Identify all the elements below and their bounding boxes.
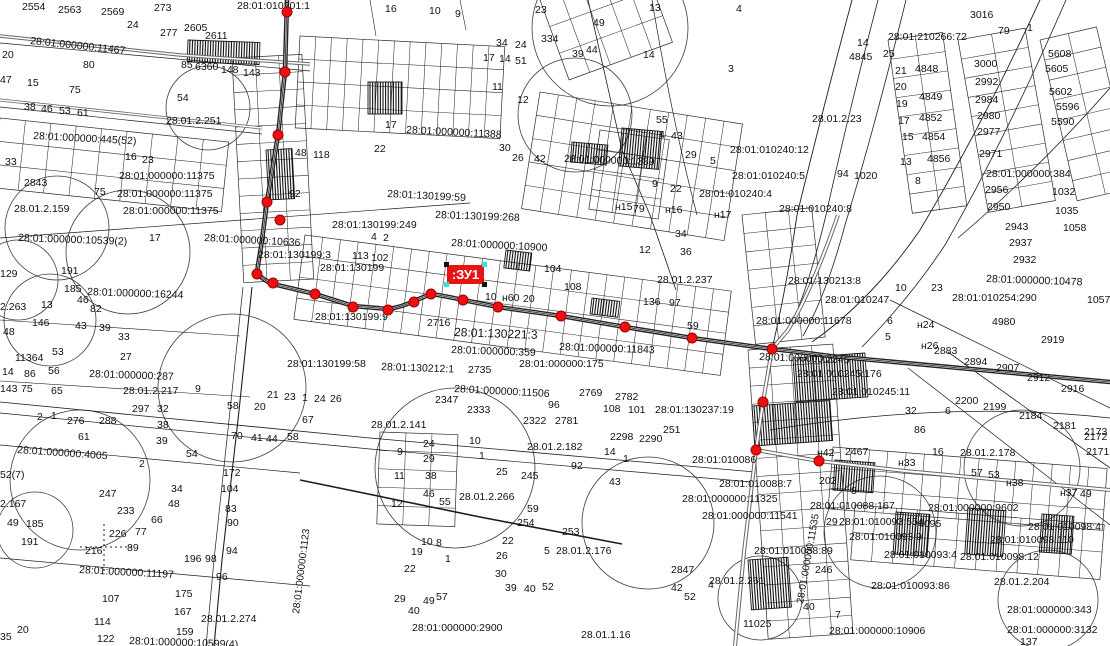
map-label: 226: [109, 528, 127, 540]
map-label: 28:01:010098:110: [990, 534, 1074, 546]
map-label: 28:01:000000:11375: [119, 170, 215, 182]
map-label: 104: [544, 263, 562, 275]
route-vertex-dot[interactable]: [383, 305, 393, 315]
map-label: 26: [496, 550, 508, 562]
map-label: 30: [499, 142, 511, 154]
map-label: 8: [851, 485, 857, 497]
map-label: 2: [383, 232, 389, 244]
map-label: 28.01.2.261: [709, 575, 765, 587]
map-label: 2554: [22, 1, 46, 13]
map-label: 2199: [983, 401, 1007, 413]
map-label: 143: [243, 67, 261, 79]
map-label: 24: [515, 39, 527, 51]
map-label: 32: [905, 405, 917, 417]
map-label: 28:01:000000:10900: [451, 237, 548, 254]
map-label: 247: [99, 488, 117, 500]
map-label: 14: [604, 446, 616, 458]
map-label: 24: [423, 438, 435, 450]
map-label: 49: [423, 595, 435, 607]
map-label: 122: [97, 633, 115, 645]
map-label: 28:01:130221:3: [454, 325, 538, 342]
route-vertex-dot[interactable]: [556, 311, 566, 321]
map-label: 23: [931, 282, 943, 294]
map-label: 104: [221, 483, 239, 495]
map-label: 34: [171, 483, 183, 495]
map-label: 28:01:130199:268: [435, 209, 520, 224]
map-label: 2984: [975, 94, 999, 106]
map-label: 40: [524, 583, 536, 595]
route-vertex-dot[interactable]: [814, 456, 824, 466]
map-label: 59: [687, 320, 699, 332]
map-label: 28.01.2.176: [556, 545, 612, 557]
map-label: 2912: [1027, 372, 1051, 384]
map-label: 89: [127, 542, 139, 554]
map-label: 1020: [854, 170, 878, 182]
map-label: 56: [48, 365, 60, 377]
map-label: 1058: [1063, 222, 1087, 234]
map-label: 23: [284, 391, 296, 403]
map-label: 10: [469, 435, 481, 447]
route-vertex-dot[interactable]: [348, 302, 358, 312]
map-label: 4: [736, 3, 742, 15]
map-label: 5608: [1048, 48, 1072, 60]
route-vertex-dot[interactable]: [262, 197, 272, 207]
map-label: 4: [371, 231, 377, 243]
map-label: 28:01:000000:11843: [559, 341, 655, 356]
map-label: 2971: [979, 148, 1003, 160]
map-label: 6: [887, 315, 893, 327]
map-label: 148: [221, 64, 239, 76]
map-label: 136: [643, 296, 661, 308]
map-label: 9: [195, 383, 201, 395]
map-label: 75: [69, 84, 81, 96]
map-label: 10: [895, 282, 907, 294]
map-label: 38: [24, 101, 36, 113]
map-label: 51: [515, 55, 527, 67]
map-label: 185: [26, 518, 44, 530]
map-label: 34: [496, 37, 508, 49]
map-label: 167: [174, 606, 192, 618]
map-label: 35: [0, 631, 12, 643]
map-label: 28:01:000000:1389: [564, 153, 655, 168]
route-vertex-dot[interactable]: [687, 333, 697, 343]
selection-handle-bl[interactable]: [444, 282, 449, 287]
building-hatch-block: [590, 298, 620, 317]
map-label: 21: [895, 65, 907, 77]
map-label: 29: [826, 516, 838, 528]
map-label: 4849: [919, 91, 943, 103]
map-label: 27: [120, 351, 132, 363]
map-label: 28:01:000000:11467: [30, 35, 126, 57]
map-label: 28.01.2.182: [527, 441, 583, 453]
map-label: 28:01:000000:11535: [795, 513, 822, 605]
map-label: 28:01:000000:11678: [756, 315, 852, 327]
map-label: 5596: [1056, 101, 1080, 113]
map-label: 191: [61, 265, 79, 277]
route-vertex-dot[interactable]: [758, 397, 768, 407]
map-label: 28:01:130199:59: [387, 188, 467, 204]
map-label: 34: [675, 228, 687, 240]
map-label: 28:01:000000:343: [1007, 604, 1092, 616]
map-label: 30: [495, 568, 507, 580]
map-label: 28:01:010093:9: [849, 531, 922, 543]
map-label: 20: [17, 624, 29, 636]
map-label: 28:01:130199:249: [332, 219, 417, 231]
map-label: 2883: [934, 345, 958, 357]
map-label: 28:01:130199:58: [287, 358, 366, 370]
map-label: 28:01:010098:4: [1028, 521, 1101, 533]
route-vertex-dot[interactable]: [252, 269, 262, 279]
map-label: 67: [302, 414, 314, 426]
map-label: 28:01:010245:176: [797, 368, 882, 380]
map-label: 14: [857, 37, 869, 49]
route-vertex-dot[interactable]: [268, 278, 278, 288]
map-label: 2298: [610, 431, 634, 443]
map-label: 2.263: [0, 301, 26, 313]
map-label: 28:01:000000:11388: [406, 124, 502, 141]
map-label: 2950: [987, 201, 1011, 213]
map-label: 46: [41, 103, 53, 115]
map-label: 2322: [523, 415, 547, 427]
road-inner: [0, 100, 262, 128]
map-label: 8: [915, 175, 921, 187]
map-label: 77: [135, 526, 147, 538]
map-label: 42: [671, 582, 683, 594]
map-label: 52: [542, 581, 554, 593]
map-label: 2.167: [0, 498, 26, 510]
route-vertex-dot[interactable]: [273, 130, 283, 140]
parcel-block: [295, 36, 505, 139]
map-label: 12: [639, 244, 651, 256]
map-label: 28.01.1.16: [581, 629, 631, 641]
map-label: 86: [24, 368, 36, 380]
map-label: 79: [998, 25, 1010, 37]
map-label: 28.01.2.217: [123, 385, 179, 397]
zu1-parcel-label[interactable]: :ЗУ1: [447, 265, 484, 284]
map-label: 16: [932, 446, 944, 458]
map-label: 38: [425, 470, 437, 482]
map-label: 53: [52, 346, 64, 358]
map-label: 11: [492, 81, 503, 93]
map-label: 52: [684, 591, 696, 603]
map-label: 28:01:010240:8: [779, 203, 852, 215]
map-label: 277: [160, 27, 178, 39]
map-label: 57: [436, 591, 448, 603]
map-label: 101: [628, 404, 646, 416]
map-label: 9: [397, 446, 403, 458]
map-label: 143: [0, 383, 18, 395]
map-label: 9: [652, 178, 658, 190]
map-label: 7: [835, 609, 841, 621]
zone-boundary-circle: [166, 66, 250, 150]
map-label: 28:01:000000:11197: [79, 564, 174, 581]
route-vertex-dot[interactable]: [493, 302, 503, 312]
route-vertex-dot[interactable]: [620, 322, 630, 332]
map-label: 46: [423, 488, 435, 500]
map-label: 10: [421, 536, 433, 548]
map-label: 2605: [184, 22, 208, 34]
map-label: 28.01.2.178: [960, 447, 1016, 459]
map-label: 28:01:210266:72: [888, 31, 967, 43]
map-label: 108: [603, 403, 621, 415]
map-label: 3: [728, 63, 734, 75]
map-label: 16: [385, 3, 397, 15]
map-label: 28:01:000000:11375: [123, 205, 219, 217]
map-label: 15: [27, 77, 39, 89]
map-label: 98: [205, 553, 217, 565]
map-label: 28:01:000000:10539(2): [18, 232, 128, 248]
map-label: 10: [429, 5, 441, 17]
map-label: 14: [2, 366, 14, 378]
map-label: 19: [896, 98, 908, 110]
map-label: 44: [266, 433, 278, 445]
map-label: 40: [408, 605, 420, 617]
map-label: н38: [1006, 477, 1024, 489]
map-label: 22: [502, 535, 514, 547]
map-label: 28.01.2.23: [812, 113, 862, 125]
map-label: 28:01:000000:175: [519, 358, 604, 370]
map-label: 108: [564, 281, 582, 293]
map-label: 3000: [974, 58, 998, 70]
map-label: 28:01:000000:10599(4): [129, 635, 239, 646]
map-label: 1032: [1052, 186, 1076, 198]
map-label: 39: [572, 48, 584, 60]
map-label: н60: [502, 292, 520, 304]
map-label: 172: [223, 467, 241, 479]
map-label: 28:01:000000:9602: [928, 502, 1019, 514]
map-label: н16: [665, 204, 683, 216]
map-label: 52(7): [0, 469, 25, 481]
map-label: 39: [505, 582, 517, 594]
map-label: 3016: [970, 9, 994, 21]
map-label: 28:01:000000:11541: [702, 510, 798, 522]
map-label: 1: [445, 553, 451, 565]
map-label: н37: [1060, 487, 1078, 499]
map-label: 2843: [24, 177, 48, 189]
map-label: 28:01:130199: [320, 262, 384, 274]
map-label: 2781: [555, 415, 579, 427]
map-label: 28:01:000000:10636: [204, 232, 301, 249]
map-label: 28:01:010254:290: [952, 292, 1037, 304]
map-label: 82: [90, 303, 102, 315]
map-label: 196: [184, 553, 202, 565]
map-label: 2782: [615, 391, 639, 403]
map-label: 75: [94, 186, 106, 198]
map-label: 29: [394, 593, 406, 605]
map-label: 28:01:000000:11506: [454, 383, 550, 400]
route-vertex-dot[interactable]: [767, 344, 777, 354]
map-label: 28.01.2.141: [371, 419, 427, 431]
map-label: 2907: [996, 362, 1020, 374]
map-label: 118: [313, 149, 330, 161]
map-label: 14: [643, 49, 655, 61]
map-label: 28:01:130237:19: [655, 404, 734, 416]
cadastral-map-canvas[interactable]: 25542563256927328:01:010201:124277260526…: [0, 0, 1110, 646]
map-label: 12: [517, 94, 529, 106]
map-label: 97: [669, 297, 681, 309]
map-label: 22: [404, 563, 416, 575]
map-label: 4980: [992, 316, 1016, 328]
map-label: 29: [685, 149, 697, 161]
map-label: 28:01:000000:16244: [87, 286, 184, 301]
map-label: 28.01.2.266: [459, 491, 515, 503]
map-label: 13: [900, 156, 912, 168]
map-label: 20: [254, 401, 266, 413]
map-label: 20: [523, 293, 535, 305]
route-vertex-dot[interactable]: [409, 297, 419, 307]
selection-handle-br[interactable]: [482, 282, 487, 287]
map-label: 28.01.2.204: [994, 576, 1050, 588]
map-label: 216: [85, 545, 103, 557]
map-label: 92: [571, 460, 583, 472]
map-label: 41: [251, 432, 263, 444]
map-label: 1: [302, 392, 308, 404]
map-label: 1: [479, 450, 485, 462]
route-vertex-dot[interactable]: [275, 215, 285, 225]
map-label: 276: [67, 415, 85, 427]
boundary-line: [370, 0, 376, 36]
map-label: 2735: [468, 364, 492, 376]
map-label: 11025: [743, 618, 772, 630]
map-label: 5: [544, 545, 550, 557]
map-label: 2980: [977, 110, 1001, 122]
map-label: 114: [94, 616, 111, 628]
map-label: 2200: [955, 395, 979, 407]
map-label: 58: [227, 400, 239, 412]
map-label: 5605: [1045, 63, 1069, 75]
map-label: 146: [32, 317, 50, 329]
map-label: 65: [51, 385, 63, 397]
map-label: 17: [483, 52, 495, 64]
map-label: 4852: [919, 112, 943, 124]
route-vertex-dot[interactable]: [310, 289, 320, 299]
map-label: 1: [1027, 22, 1033, 34]
route-vertex-dot[interactable]: [458, 295, 468, 305]
map-label: 2937: [1009, 237, 1033, 249]
map-label: 2847: [671, 564, 695, 576]
map-label: 23: [535, 4, 547, 16]
map-label: 2: [139, 458, 145, 470]
map-label: 28:01:010093:86: [871, 580, 950, 592]
map-label: 10: [485, 291, 497, 303]
map-label: 6: [945, 405, 951, 417]
map-label: 5590: [1051, 116, 1075, 128]
map-label: 25: [883, 48, 895, 60]
map-label: 11: [394, 470, 405, 482]
map-label: 75: [21, 383, 33, 395]
map-label: 28:01:000000:10906: [829, 625, 926, 637]
map-label: 70: [231, 430, 243, 442]
map-label: 53: [988, 469, 1000, 481]
map-label: 54: [186, 448, 198, 460]
map-label: 2992: [975, 76, 999, 88]
building-hatch-block: [504, 250, 532, 271]
route-vertex-dot[interactable]: [280, 67, 290, 77]
map-label: 33: [118, 331, 130, 343]
map-label: 1057: [1087, 294, 1110, 306]
map-label: 2563: [58, 4, 82, 16]
map-label: 28.01.2.274: [201, 613, 257, 625]
map-label: 28:01:000000:287: [89, 368, 174, 383]
map-label: 113: [352, 250, 369, 262]
map-label: 28:01:010240:5: [732, 170, 805, 182]
map-label: 92: [289, 188, 301, 200]
map-label: 107: [102, 593, 120, 605]
map-label: 129: [0, 268, 18, 280]
map-label: 22: [374, 143, 386, 155]
map-label: н33: [898, 457, 916, 469]
map-label: 1035: [1055, 205, 1079, 217]
map-label: 66: [151, 514, 163, 526]
map-label: 86: [914, 424, 926, 436]
map-label: 2172: [1084, 431, 1108, 443]
map-label: 26: [330, 393, 342, 405]
map-label: 334: [541, 33, 559, 45]
map-label: 1: [51, 410, 57, 422]
map-label: 96: [216, 571, 228, 583]
building-hatch-block: [368, 82, 402, 114]
map-label: 246: [815, 564, 833, 576]
selection-handle-tl[interactable]: [444, 262, 449, 267]
map-label: 2894: [964, 356, 988, 368]
map-label: 32: [157, 403, 169, 415]
route-vertex-dot[interactable]: [426, 289, 436, 299]
map-label: 49: [1080, 488, 1092, 500]
map-label: 2290: [639, 433, 663, 445]
map-label: 2347: [435, 394, 459, 406]
map-label: 4095: [918, 518, 942, 530]
map-label: 28:01:010093:4: [884, 549, 957, 561]
map-label: 137: [1020, 636, 1038, 646]
map-label: 2467: [845, 446, 869, 458]
route-vertex-dot[interactable]: [282, 7, 292, 17]
map-label: 9: [455, 8, 461, 20]
route-vertex-dot[interactable]: [751, 445, 761, 455]
map-label: 28:01:130199:9: [315, 311, 388, 323]
map-label: 28.01.2.159: [14, 203, 70, 215]
map-label: 254: [517, 517, 535, 529]
map-label: 53: [59, 105, 71, 117]
map-label: 61: [77, 107, 89, 119]
map-label: 2569: [101, 6, 125, 18]
map-label: 28:01:000000:3132: [1007, 624, 1098, 636]
map-label: н24: [917, 319, 935, 331]
map-label: 24: [314, 393, 326, 405]
map-label: 38: [157, 419, 169, 431]
map-label: 11364: [15, 352, 44, 364]
map-label: 43: [609, 476, 621, 488]
map-label: 55: [656, 114, 668, 126]
map-label: 202: [819, 475, 837, 487]
map-label: 54: [177, 92, 189, 104]
map-label: 2181: [1053, 420, 1077, 432]
cadastral-map-viewport[interactable]: 25542563256927328:01:010201:124277260526…: [0, 0, 1110, 646]
map-label: 49: [7, 517, 19, 529]
map-label: 28:01:010247: [825, 294, 889, 306]
map-label: 28:01:010088:7: [719, 478, 792, 490]
map-label: 5: [710, 155, 716, 167]
map-label: 175: [175, 588, 193, 600]
map-label: 2916: [1061, 383, 1085, 395]
map-label: 191: [21, 536, 39, 548]
map-label: 26: [512, 152, 524, 164]
selection-handle-tr[interactable]: [482, 262, 487, 267]
map-label: 2956: [985, 184, 1009, 196]
map-label: 5602: [1049, 86, 1073, 98]
map-label: 79: [633, 203, 645, 215]
map-label: 2: [37, 411, 43, 423]
map-label: 28.01.2.251: [166, 115, 222, 127]
